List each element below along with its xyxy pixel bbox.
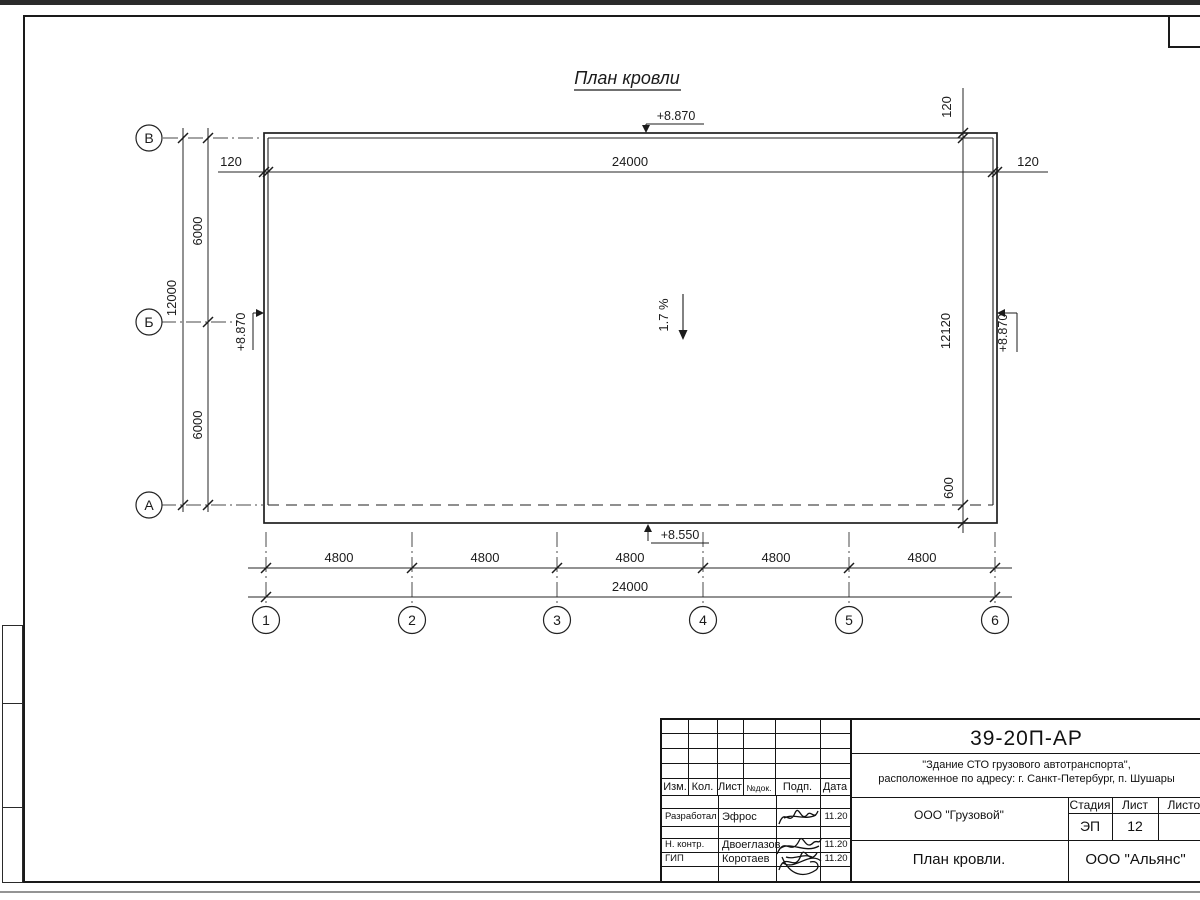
- tb-project-line1: "Здание СТО грузового автотранспорта",: [850, 759, 1200, 772]
- axis-col-label: 2: [408, 612, 416, 628]
- axis-row-label: В: [144, 130, 153, 146]
- tb-role-gip: ГИП: [665, 854, 684, 865]
- axis-row-label: Б: [144, 314, 153, 330]
- dim-total-width-top: 24000: [612, 154, 648, 169]
- axis-col-label: 1: [262, 612, 270, 628]
- slope-arrow-group: 1.7 %: [656, 294, 688, 340]
- dim-total-width-bottom: 24000: [612, 579, 648, 594]
- dim-bay-3: 4800: [616, 550, 645, 565]
- tb-name-developer: Эфрос: [722, 811, 757, 824]
- axis-col-label: 3: [553, 612, 561, 628]
- elev-parapet-left: +8.870: [234, 313, 248, 352]
- tb-date-gip: 11.20: [822, 854, 850, 865]
- slope-arrowhead: [679, 330, 688, 340]
- tb-col-data: Дата: [820, 781, 850, 794]
- tb-project-line2: расположенное по адресу: г. Санкт-Петерб…: [850, 773, 1200, 786]
- dim-edge-offset-top-right: 120: [939, 96, 954, 118]
- dim-edge-offset-right: 120: [1017, 154, 1039, 169]
- tb-sheet-label: Лист: [1112, 799, 1158, 813]
- tb-stage-value: ЭП: [1068, 818, 1112, 834]
- tb-col-podp: Подп.: [775, 781, 820, 794]
- tb-designer-org: ООО "Альянс": [1068, 851, 1200, 868]
- dim-bay-5: 4800: [908, 550, 937, 565]
- signature-scribble: [774, 842, 824, 880]
- dimension-labels: 24000 120 120 120 12000 6000 6000 12120 …: [164, 96, 1039, 594]
- axis-row-label: А: [144, 497, 154, 513]
- tb-name-ncontrol: Двоеглазов: [722, 839, 780, 852]
- tb-sheets-label: Листов: [1158, 799, 1200, 813]
- dim-row-bay-upper: 6000: [190, 217, 205, 246]
- tb-col-kol: Кол.: [688, 781, 717, 794]
- tb-role-ncontrol: Н. контр.: [665, 840, 704, 851]
- axis-bubbles: В Б А 1 2 3 4 5 6: [136, 125, 1009, 634]
- elev-arrow-top: [642, 125, 650, 133]
- slope-label: 1.7 %: [656, 298, 671, 332]
- tb-date-ncontrol: 11.20: [822, 840, 850, 851]
- tb-doc-code: 39-20П-АР: [850, 727, 1200, 751]
- tb-col-ndok: №док.: [743, 784, 775, 794]
- sheet-title-group: План кровли: [574, 68, 681, 90]
- tb-col-izm: Изм.: [662, 781, 688, 794]
- elevation-marks: +8.870 +8.550 +8.870 +8.870: [234, 109, 1017, 543]
- roof-outer-edge: [264, 133, 997, 523]
- tb-sheet-value: 12: [1112, 818, 1158, 834]
- elev-parapet-top: +8.870: [657, 109, 696, 123]
- elev-parapet-right: +8.870: [996, 314, 1010, 353]
- axis-col-label: 4: [699, 612, 707, 628]
- dim-edge-offset-left: 120: [220, 154, 242, 169]
- dim-right-height: 12120: [938, 313, 953, 349]
- tb-name-gip: Коротаев: [722, 853, 770, 866]
- tb-date-developer: 11.20: [822, 812, 850, 823]
- drawing-title: План кровли: [574, 68, 680, 88]
- elev-eave-bottom: +8.550: [661, 528, 700, 542]
- tb-col-list: Лист: [717, 781, 743, 794]
- tb-sheet-name: План кровли.: [850, 851, 1068, 868]
- dim-bay-2: 4800: [471, 550, 500, 565]
- roof-outline: [264, 133, 997, 523]
- dim-row-bay-lower: 6000: [190, 411, 205, 440]
- axis-lines: [161, 138, 995, 606]
- elev-arrow-bottom: [644, 524, 652, 532]
- tb-stage-label: Стадия: [1068, 799, 1112, 813]
- dimension-ticks: [178, 128, 1002, 602]
- dim-total-height: 12000: [164, 280, 179, 316]
- dim-eave-drop: 600: [941, 477, 956, 499]
- dim-bay-4: 4800: [762, 550, 791, 565]
- axis-col-label: 6: [991, 612, 999, 628]
- signature-scribble: [776, 804, 820, 830]
- axis-col-label: 5: [845, 612, 853, 628]
- title-block: Изм. Кол. Лист №док. Подп. Дата Разработ…: [660, 718, 1200, 883]
- drawing-sheet: { "drawing": { "title": "План кровли", "…: [0, 0, 1200, 900]
- tb-customer-org: ООО "Грузовой": [850, 809, 1068, 823]
- tb-role-developer: Разработал: [665, 812, 717, 823]
- dim-bay-1: 4800: [325, 550, 354, 565]
- elev-arrow-left: [256, 309, 264, 317]
